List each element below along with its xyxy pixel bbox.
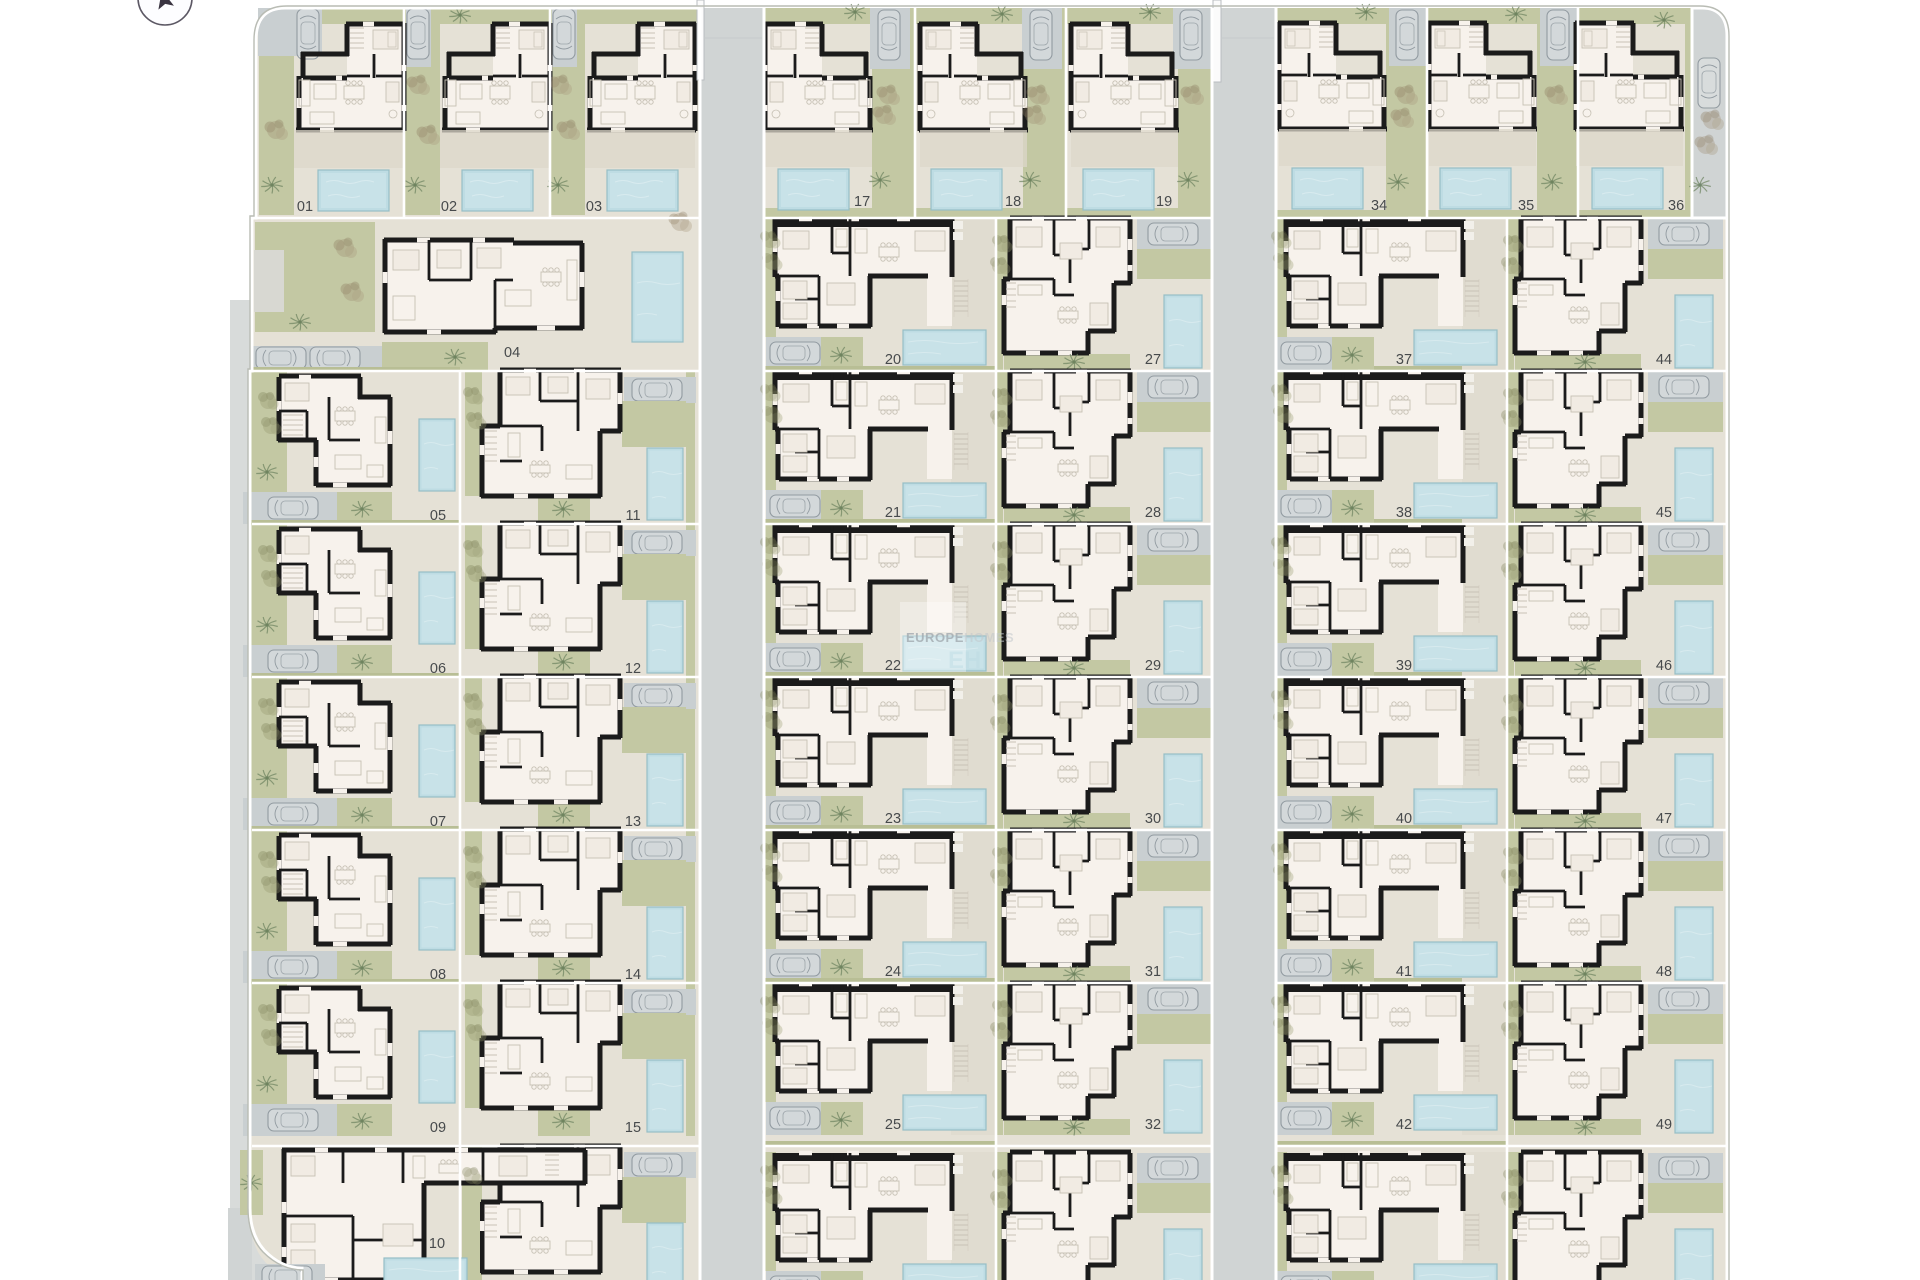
svg-text:39: 39 (1396, 658, 1412, 674)
svg-text:41: 41 (1396, 964, 1412, 980)
svg-text:20: 20 (885, 352, 901, 368)
svg-text:11: 11 (625, 508, 640, 524)
svg-text:32: 32 (1145, 1117, 1161, 1133)
svg-text:40: 40 (1396, 811, 1412, 827)
svg-text:38: 38 (1396, 505, 1412, 521)
svg-text:25: 25 (885, 1117, 901, 1133)
svg-text:15: 15 (625, 1120, 641, 1136)
svg-text:19: 19 (1156, 194, 1172, 210)
svg-text:21: 21 (885, 505, 901, 521)
svg-text:49: 49 (1656, 1117, 1672, 1133)
svg-text:29: 29 (1145, 658, 1161, 674)
svg-text:17: 17 (854, 194, 870, 210)
svg-text:03: 03 (586, 199, 602, 215)
svg-text:23: 23 (885, 811, 901, 827)
svg-text:13: 13 (625, 814, 641, 830)
svg-text:45: 45 (1656, 505, 1672, 521)
svg-text:28: 28 (1145, 505, 1161, 521)
svg-text:HOMES: HOMES (964, 630, 1014, 645)
svg-text:46: 46 (1656, 658, 1672, 674)
svg-text:EUROPE: EUROPE (906, 630, 964, 645)
svg-text:10: 10 (429, 1236, 445, 1252)
svg-text:36: 36 (1668, 198, 1684, 214)
svg-text:34: 34 (1371, 198, 1387, 214)
svg-text:42: 42 (1396, 1117, 1412, 1133)
svg-text:12: 12 (625, 661, 641, 677)
svg-text:09: 09 (430, 1120, 446, 1136)
svg-text:04: 04 (504, 345, 520, 361)
svg-text:02: 02 (441, 199, 457, 215)
svg-text:14: 14 (625, 967, 641, 983)
svg-text:37: 37 (1396, 352, 1412, 368)
svg-text:22: 22 (885, 658, 901, 674)
svg-text:24: 24 (885, 964, 901, 980)
svg-text:35: 35 (1518, 198, 1534, 214)
svg-text:31: 31 (1145, 964, 1161, 980)
svg-text:EH: EH (948, 647, 981, 674)
svg-text:01: 01 (297, 199, 313, 215)
svg-text:48: 48 (1656, 964, 1672, 980)
svg-text:44: 44 (1656, 352, 1672, 368)
svg-text:18: 18 (1005, 194, 1021, 210)
svg-text:47: 47 (1656, 811, 1672, 827)
svg-text:30: 30 (1145, 811, 1161, 827)
svg-text:27: 27 (1145, 352, 1161, 368)
